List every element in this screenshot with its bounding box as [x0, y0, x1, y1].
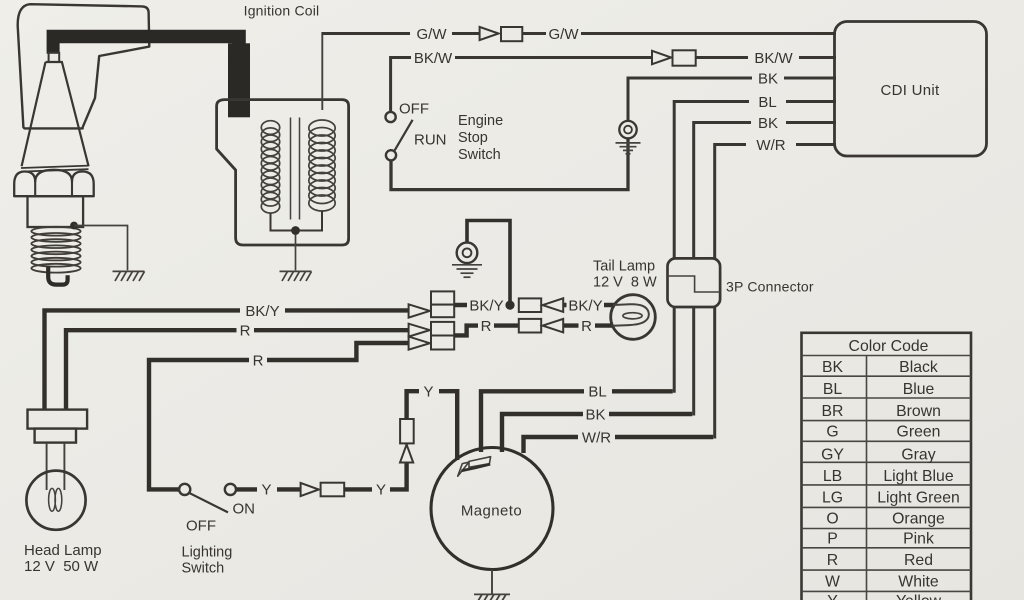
svg-text:BK: BK [585, 406, 605, 423]
svg-text:BR: BR [822, 403, 844, 420]
svg-text:12 V 50 W: 12 V 50 W [24, 558, 99, 575]
svg-text:Orange: Orange [892, 511, 945, 528]
svg-text:G: G [826, 423, 838, 440]
svg-text:3P Connector: 3P Connector [726, 279, 814, 295]
svg-text:O: O [826, 511, 838, 528]
svg-text:Red: Red [904, 552, 933, 569]
svg-text:Y: Y [423, 384, 433, 401]
svg-text:R: R [240, 323, 251, 340]
svg-text:W/R: W/R [582, 429, 611, 446]
svg-text:R: R [253, 352, 264, 369]
svg-text:R: R [827, 552, 838, 569]
svg-text:Green: Green [897, 423, 941, 440]
svg-text:Engine: Engine [458, 113, 503, 129]
svg-text:Blue: Blue [903, 381, 935, 398]
svg-text:Light Blue: Light Blue [883, 468, 953, 485]
svg-text:Switch: Switch [458, 147, 501, 163]
svg-text:P: P [827, 531, 838, 548]
svg-text:R: R [481, 318, 492, 335]
svg-text:Head Lamp: Head Lamp [24, 542, 102, 559]
svg-text:BK: BK [758, 115, 778, 132]
svg-text:LB: LB [823, 468, 842, 485]
svg-text:BK/W: BK/W [414, 50, 453, 67]
svg-text:BK/Y: BK/Y [568, 297, 602, 314]
svg-text:Black: Black [899, 359, 938, 376]
svg-text:Stop: Stop [458, 130, 488, 146]
svg-text:Y: Y [827, 593, 838, 600]
svg-text:White: White [898, 574, 939, 591]
svg-text:BK/W: BK/W [754, 50, 793, 67]
svg-text:G/W: G/W [417, 26, 448, 43]
svg-text:BL: BL [588, 384, 606, 401]
svg-text:OFF: OFF [186, 517, 216, 534]
svg-text:GY: GY [821, 447, 844, 464]
svg-text:Light Green: Light Green [877, 490, 960, 507]
svg-text:BL: BL [823, 381, 843, 398]
svg-text:Ignition Coil: Ignition Coil [244, 3, 320, 19]
svg-text:R: R [581, 318, 592, 335]
svg-text:W: W [825, 574, 840, 591]
svg-text:CDI Unit: CDI Unit [880, 82, 940, 99]
svg-text:LG: LG [822, 490, 843, 507]
svg-text:Color Code: Color Code [849, 338, 929, 355]
svg-text:BK/Y: BK/Y [469, 297, 503, 314]
svg-text:Magneto: Magneto [461, 502, 522, 519]
svg-text:OFF: OFF [399, 101, 429, 118]
svg-text:Y: Y [376, 482, 386, 499]
svg-text:ON: ON [233, 500, 256, 517]
svg-text:Yellow: Yellow [896, 593, 942, 600]
svg-text:G/W: G/W [549, 26, 580, 43]
svg-text:Pink: Pink [903, 531, 934, 548]
svg-text:Gray: Gray [901, 447, 935, 464]
svg-text:Tail Lamp: Tail Lamp [593, 258, 655, 274]
svg-text:BK: BK [758, 70, 778, 87]
svg-text:Y: Y [261, 482, 271, 499]
svg-text:W/R: W/R [756, 137, 785, 154]
svg-text:BL: BL [758, 94, 776, 111]
svg-text:Brown: Brown [896, 403, 941, 420]
svg-text:12 V 8 W: 12 V 8 W [593, 274, 657, 290]
svg-text:Switch: Switch [182, 560, 225, 576]
svg-text:BK: BK [822, 359, 844, 376]
svg-text:BK/Y: BK/Y [245, 303, 279, 320]
svg-text:RUN: RUN [414, 132, 447, 149]
svg-text:Lighting: Lighting [182, 544, 233, 560]
